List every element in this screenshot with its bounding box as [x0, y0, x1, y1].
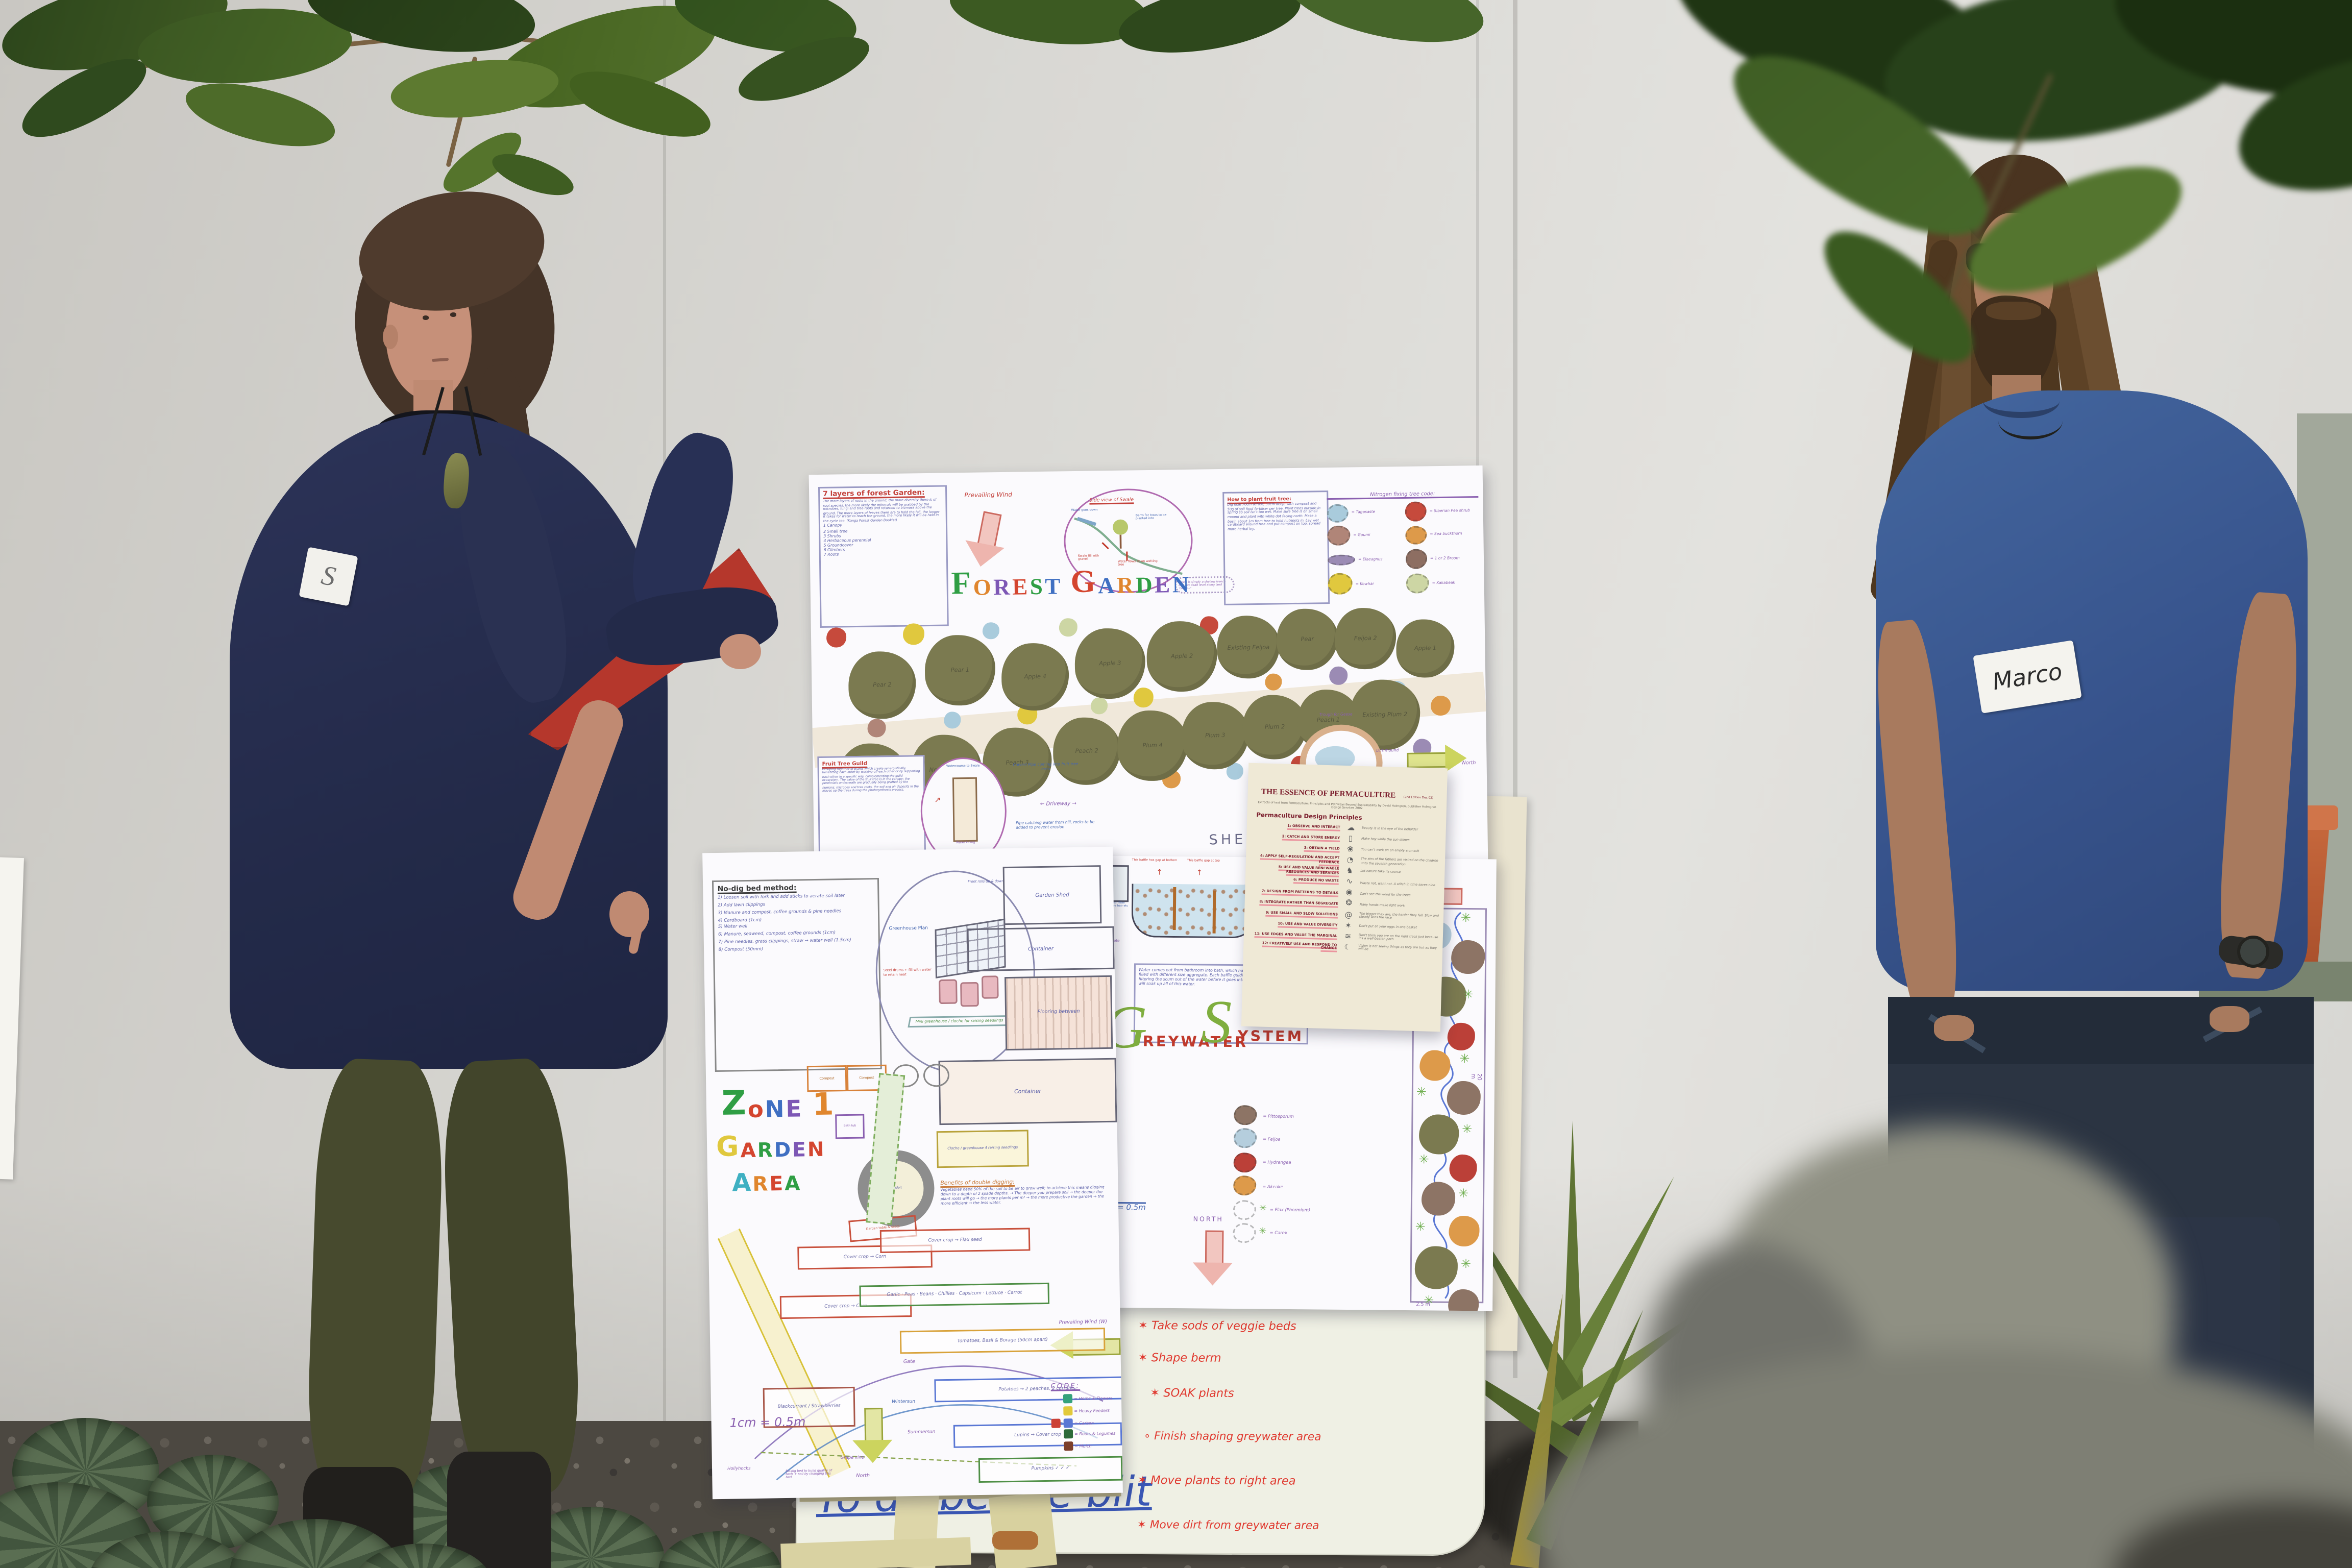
tree-label: Existing Feijoa [1228, 644, 1270, 650]
flax-star: ✳ [1462, 1124, 1472, 1136]
orchard-dot [1265, 673, 1282, 690]
greywater-legend: = Pittosporum = Feijoa = Hydrangea = Ake… [1233, 1105, 1356, 1247]
forest-north-label: North [1462, 759, 1476, 766]
essence-edition: (2nd Edition Dec 02) [1403, 796, 1433, 800]
garden-bed: Garlic · Peas · Beans · Chillies · Capsi… [859, 1283, 1049, 1307]
legend-label: = Carex [1269, 1230, 1287, 1236]
nitrogen-item: = Tagasaste [1327, 502, 1401, 523]
listener-name-text: Marco [1991, 658, 2064, 696]
principle-proverb: Let nature take its course [1360, 871, 1443, 876]
principle-icon: ∿ [1341, 879, 1358, 887]
nitrogen-item: = Sea buckthorn [1405, 524, 1479, 545]
principle-name: 3: OBTAIN A YIELD [1256, 846, 1340, 852]
baffle [1213, 891, 1216, 934]
leaf [388, 53, 561, 125]
title-letter: G [1070, 562, 1096, 601]
strip-plant-blob [1414, 1246, 1458, 1289]
principle-name: 2: CATCH AND STORE ENERGY [1256, 835, 1340, 841]
orchard-dot [1134, 688, 1154, 708]
nitrogen-swatch [1406, 549, 1428, 569]
orchard-tree: Apple 4 [1001, 643, 1069, 711]
greywater-title-s: S [1200, 985, 1232, 1058]
garden-bed: Cover crop → Flax seed [880, 1228, 1031, 1253]
zone1-scale: 1cm = 0.5m [729, 1415, 805, 1430]
nitrogen-item: = Elaeagnus [1328, 549, 1402, 570]
nitrogen-label: = Sea buckthorn [1430, 532, 1462, 537]
principle-icon: ☁ [1342, 825, 1359, 833]
hand-in-pocket [1934, 1015, 1974, 1041]
baffle1-label: This baffle has gap at bottom [1132, 859, 1178, 863]
legend-label: = Pittosporum [1263, 1112, 1294, 1119]
tree-label: Pear [1301, 636, 1314, 643]
todo-item: ✶ Shape berm [1138, 1351, 1221, 1365]
presenter-name-tag: S [299, 547, 358, 606]
foliage-top-right [1623, 0, 2352, 429]
presenter-name-text: S [318, 559, 338, 594]
essence-title: THE ESSENCE OF PERMACULTURE [1261, 788, 1396, 800]
principle-proverb: Make hay while the sun shines [1361, 838, 1444, 844]
bed-label: Garlic · Peas · Beans · Chillies · Capsi… [884, 1291, 1025, 1298]
culvert-pipe-sketch [952, 777, 978, 842]
orchard-tree: Pear 1 [924, 634, 996, 706]
tree-label: Plum 3 [1205, 732, 1225, 739]
principle-proverb: The bigger they are, the harder they fal… [1359, 913, 1442, 922]
guild-body: Grouping together of plants which create… [822, 767, 921, 794]
presenter-ear [383, 325, 398, 349]
principle-proverb: Don't put all your eggs in one basket [1359, 925, 1441, 931]
flax-star: ✳ [1463, 989, 1473, 1001]
leaf [487, 145, 578, 204]
principle-row: 7: DESIGN FROM PATTERNS TO DETAILS ◉ Can… [1254, 888, 1435, 900]
title-letter: D [1136, 574, 1153, 600]
nitrogen-swatch [1327, 526, 1351, 547]
code-label: = Heavy Feeders [1074, 1407, 1110, 1413]
strip-width-label: 2.5 m [1416, 1301, 1430, 1307]
principle-icon: ☾ [1339, 944, 1356, 952]
code-swatch-secondary [1051, 1442, 1061, 1451]
garden-bed: Pumpkins ✓ ✓ ✓ [978, 1456, 1123, 1483]
tree-label: Apple 1 [1414, 645, 1436, 651]
howto-body: Dig hole 70cm across, 30cm deep, with co… [1228, 503, 1325, 532]
principle-proverb: Don't think you are on the right track j… [1359, 935, 1441, 944]
orchard-dot [1091, 697, 1108, 714]
orchard-dot [944, 712, 961, 728]
tree-label: Pear 1 [951, 667, 970, 673]
nitrogen-label: = Kowhai [1356, 581, 1374, 586]
seven-layers-block: 7 layers of forest Garden: The more laye… [818, 485, 949, 627]
orchard-dot [903, 623, 925, 645]
tree-label: Feijoa 2 [1354, 635, 1377, 642]
nitrogen-label: = Tagasaste [1352, 510, 1376, 515]
wintersun-label: Wintersun [892, 1398, 915, 1405]
wristwatch-face [2237, 936, 2269, 968]
title-letter: S [1030, 576, 1043, 602]
bed-label: Tomatoes, Basil & Borage (50cm apart) [954, 1338, 1050, 1344]
swale-water-label: Water goes down [1071, 509, 1099, 512]
code-swatch [1063, 1442, 1072, 1451]
nitrogen-swatch [1406, 573, 1429, 593]
photo-scene: S To do before blit ✶ Move plants …✶ Tak… [0, 0, 2352, 1568]
nitrogen-swatch [1328, 573, 1353, 595]
orchard-dot [1329, 667, 1347, 685]
code-swatch [1063, 1418, 1072, 1427]
principle-icon: ♞ [1341, 868, 1358, 876]
flax-star: ✳ [1461, 1259, 1471, 1271]
code-item: = Mulch [1051, 1441, 1122, 1451]
orchard-tree: Apple 2 [1146, 621, 1218, 692]
principle-row: 9: USE SMALL AND SLOW SOLUTIONS @ The bi… [1254, 910, 1434, 922]
presenter-boot-shaft [447, 1452, 551, 1568]
orchard-tree: Plum 3 [1181, 701, 1249, 770]
strip-plant-blob [1419, 1050, 1451, 1081]
orchard-tree: Apple 3 [1074, 628, 1146, 699]
code-label: = Roots & Legumes [1074, 1431, 1115, 1437]
presenter-eye [423, 315, 429, 320]
trough-label: Trough for Geese [1305, 712, 1366, 718]
nitrogen-label: = 1 or 2 Broom [1430, 556, 1460, 561]
nitrogen-swatch [1405, 501, 1427, 522]
tree-label: Peach 2 [1075, 748, 1098, 754]
flax-star: ✳ [1415, 1221, 1425, 1234]
orchard-dot [983, 622, 999, 639]
principle-name: 6: PRODUCE NO WASTE [1255, 879, 1339, 885]
greywater-title-reywater: REYWATER [1143, 1034, 1248, 1051]
nitrogen-label: = Goumi [1353, 533, 1370, 538]
culvert-note: Culvert Pipe coming into fruit tree area [1009, 762, 1083, 772]
hollyhocks-label: Hollyhocks [727, 1465, 751, 1472]
guild-heading: Fruit Tree Guild [822, 759, 920, 767]
legend-swatch [1234, 1129, 1257, 1148]
greywater-title-ystem: YSTEM [1238, 1028, 1304, 1046]
legend-star: ✳ [1259, 1229, 1266, 1238]
nitrogen-label: = Siberian Pea shrub [1430, 508, 1470, 513]
baffle-arrow: ↑ [1157, 869, 1163, 878]
baffle2-label: This baffle gap at top [1187, 860, 1227, 863]
orchard-tree: Pear 2 [848, 651, 916, 719]
principle-row: 6: PRODUCE NO WASTE ∿ Waste not, want no… [1255, 877, 1435, 890]
todo-item: ✶ Move plants to right area [1137, 1473, 1295, 1488]
principle-proverb: The sins of the fathers are visited on t… [1361, 859, 1443, 868]
greywater-legend-item: ✳ = Carex [1233, 1223, 1355, 1244]
principle-name: 8: INTEGRATE RATHER THAN SEGREGATE [1254, 900, 1338, 906]
principle-name: 11: USE EDGES AND VALUE THE MARGINAL [1253, 933, 1337, 939]
pipe-note: Pipe catching water from hill, rocks to … [1016, 820, 1105, 830]
nitrogen-item: = Goumi [1327, 525, 1401, 546]
principle-proverb: Can't see the wood for the trees [1360, 893, 1442, 898]
code-items: = Herbs & Flowers = Heavy Feeders = Carb… [1051, 1393, 1122, 1452]
principle-name: 1: OBSERVE AND INTERACT [1256, 824, 1340, 830]
tree-label: Plum 2 [1265, 724, 1285, 730]
orchard-tree: Peach 2 [1052, 717, 1121, 786]
orchard-tree: Apple 1 [1396, 619, 1455, 678]
nitrogen-item: = 1 or 2 Broom [1406, 548, 1480, 569]
tree-label: Peach 1 [1317, 717, 1340, 723]
title-letter: E [1155, 574, 1170, 600]
orchard-tree: Pear [1276, 608, 1338, 671]
todo-item: ✶ Take sods of veggie beds [1138, 1318, 1296, 1333]
foliage-top-left [0, 0, 949, 230]
legend-star: ✳ [1259, 1205, 1267, 1214]
principles-list: 1: OBSERVE AND INTERACT ☁ Beauty is in t… [1253, 822, 1437, 954]
leaf [1114, 0, 1305, 64]
presenter-pointing-hand [609, 891, 649, 937]
title-letter: N [1172, 574, 1189, 600]
code-label: = Mulch [1074, 1443, 1091, 1450]
bath-tub-sketch [1131, 884, 1257, 938]
code-swatch-secondary [1051, 1394, 1060, 1404]
orchard-tree: Existing Feijoa [1217, 615, 1281, 679]
culvert-top-label: Watercourse to Swale [937, 765, 989, 768]
principle-icon: ❂ [1340, 901, 1357, 909]
foliage-top-center [919, 0, 1562, 107]
strip-plant-blob [1449, 1155, 1477, 1182]
code-label: = Herbs & Flowers [1074, 1395, 1112, 1402]
principle-icon: ◉ [1340, 890, 1357, 898]
nitrogen-swatch [1327, 503, 1349, 522]
orchard-tree: Feijoa 2 [1334, 607, 1396, 670]
legend-label: = Feijoa [1263, 1136, 1281, 1142]
strip-plant-blob [1451, 940, 1485, 974]
title-letter: T [1045, 575, 1061, 601]
presenter-legging [439, 1057, 584, 1497]
principle-icon: ▯ [1342, 836, 1359, 844]
tree-label: Apple 3 [1099, 660, 1121, 667]
legend-label: = Hydrangea [1263, 1159, 1291, 1165]
principle-icon: ✶ [1340, 923, 1357, 931]
strip-plant-blob [1449, 1216, 1480, 1247]
orchard-dot [1431, 696, 1451, 716]
bed-label: Cover crop → Corn [841, 1255, 890, 1260]
seven-layers-list: 1 Canopy2 Small tree3 Shrubs4 Herbaceous… [823, 523, 943, 558]
nitrogen-label: = Elaeagnus [1358, 557, 1383, 562]
code-swatch [1063, 1406, 1072, 1415]
principle-name: 12: CREATIVELY USE AND RESPOND TO CHANGE [1253, 942, 1337, 951]
greywater-legend-item: ✳ = Flax (Phormium) [1233, 1199, 1356, 1220]
nitrogen-legend: Nitrogen fixing tree code: = Tagasaste =… [1327, 490, 1480, 618]
swale-fill-label: Swale fill with gravel [1078, 555, 1109, 561]
presenter-legging [305, 1058, 446, 1509]
code-swatch [1063, 1430, 1072, 1439]
essence-heading: Permaculture Design Principles [1256, 811, 1437, 824]
zone1-north-label: North [856, 1472, 870, 1478]
baffle [1173, 887, 1176, 930]
principle-proverb: Many hands make light work [1359, 903, 1442, 909]
todo-item: ✶ SOAK plants [1150, 1386, 1234, 1400]
principle-name: 4: APPLY SELF-REGULATION AND ACCEPT FEED… [1255, 855, 1339, 865]
todo-item: ✶ Move dirt from greywater area [1137, 1517, 1319, 1532]
nodig-note: No-dig bed to build quality of beds + so… [786, 1469, 838, 1480]
leaf [1282, 0, 1490, 57]
driveway-label: ← Driveway → [1040, 800, 1076, 807]
greywater-legend-item: = Pittosporum [1234, 1105, 1356, 1126]
easel-leg [989, 1491, 1057, 1568]
title-letter: F [951, 565, 971, 603]
code-swatch-secondary [1051, 1406, 1060, 1415]
principle-name: 7: DESIGN FROM PATTERNS TO DETAILS [1254, 890, 1338, 896]
principle-proverb: You can't work on an empty stomach [1361, 849, 1443, 855]
nitrogen-items: = Tagasaste = Siberian Pea shrub = Goumi… [1327, 501, 1480, 599]
title-letter: O [973, 576, 991, 602]
principle-proverb: Beauty is in the eye of the beholder [1362, 827, 1444, 833]
principle-name: 5: USE AND VALUE RENEWABLE RESOURCES AND… [1255, 866, 1339, 876]
title-letter: R [993, 576, 1010, 602]
strip-length-label: 20 m [1470, 1073, 1482, 1086]
tree-label: Pear 2 [873, 682, 892, 688]
swale-berm-label: Berm for trees to be planted into [1136, 514, 1179, 521]
leaf [180, 71, 341, 159]
flax-star: ✳ [1461, 913, 1471, 925]
principle-name: 9: USE SMALL AND SLOW SOLUTIONS [1254, 911, 1338, 917]
nitrogen-item: = Kowhai [1328, 573, 1402, 595]
strip-plant-blob [1448, 1023, 1475, 1050]
principle-icon: ≋ [1339, 934, 1356, 942]
easel-rust [992, 1531, 1038, 1550]
forest-title-letters: FOREST GARDEN [951, 560, 1242, 603]
code-swatch-secondary [1051, 1430, 1061, 1439]
principle-proverb: Waste not, want not. A stitch in time sa… [1360, 882, 1443, 888]
bed-label: Blackcurrant / Strawberries [775, 1404, 844, 1410]
bed-label: Pumpkins ✓ ✓ ✓ [1028, 1466, 1073, 1472]
greywater-legend-item: = Akeake [1233, 1176, 1356, 1197]
principle-proverb: Vision is not seeing things as they are … [1358, 945, 1441, 954]
code-item: = Carbon [1051, 1417, 1122, 1427]
code-swatch-secondary [1051, 1418, 1061, 1427]
principle-icon: ❀ [1342, 847, 1359, 855]
principle-row: 10: USE AND VALUE DIVERSITY ✶ Don't put … [1253, 920, 1434, 933]
nitrogen-item: = Siberian Pea shrub [1405, 501, 1479, 522]
orchard-dot [867, 719, 886, 737]
greywater-north-label: NORTH [1193, 1215, 1223, 1223]
dirt-mound-label: Dirt mound [1376, 748, 1399, 753]
forest-wind-label: Prevailing Wind [962, 491, 1014, 499]
zone1-poster: No-dig bed method: 1) Loosen soil with f… [702, 847, 1123, 1499]
legend-swatch [1233, 1223, 1256, 1243]
nitrogen-label: = Kakabeak [1432, 580, 1455, 585]
nitrogen-swatch [1405, 526, 1427, 545]
tree-label: Plum 4 [1142, 743, 1162, 749]
nitrogen-swatch [1328, 554, 1355, 566]
principle-icon: ◔ [1341, 857, 1358, 866]
legend-swatch [1233, 1199, 1256, 1219]
strip-plant-blob [1419, 1114, 1459, 1155]
legend-label: = Flax (Phormium) [1270, 1207, 1310, 1213]
hand-in-pocket [2210, 1006, 2249, 1032]
code-label: = Carbon [1074, 1419, 1094, 1426]
culvert-arrow: ↗ [934, 796, 941, 805]
orchard-tree: Plum 4 [1117, 710, 1188, 781]
tree-label: Existing Plum 2 [1362, 712, 1407, 718]
todo-item: ∘ Finish shaping greywater area [1144, 1429, 1321, 1443]
leaf [1805, 210, 1993, 384]
principle-icon: @ [1340, 912, 1357, 920]
code-swatch [1062, 1394, 1071, 1403]
legend-swatch [1234, 1105, 1257, 1125]
legend-swatch [1233, 1176, 1256, 1196]
essence-sheet: THE ESSENCE OF PERMACULTURE (2nd Edition… [1241, 763, 1448, 1032]
code-item: = Herbs & Flowers [1051, 1393, 1121, 1404]
flax-star: ✳ [1416, 1087, 1427, 1099]
principle-row: 12: CREATIVELY USE AND RESPOND TO CHANGE… [1253, 942, 1433, 954]
code-legend: CODE: = Herbs & Flowers = Heavy Feeders … [1051, 1383, 1122, 1454]
seven-layers-note: The more layers of roots in the ground, … [823, 499, 943, 525]
greywater-legend-item: = Feijoa [1234, 1129, 1356, 1149]
title-letter: A [1098, 575, 1115, 601]
orchard-dot [826, 627, 847, 648]
title-letter [1063, 575, 1069, 601]
flax-star: ✳ [1458, 1188, 1468, 1200]
tree-label: Apple 4 [1024, 674, 1046, 680]
presenter-eye [450, 312, 456, 316]
code-item: = Roots & Legumes [1051, 1429, 1122, 1439]
code-heading: CODE: [1051, 1383, 1121, 1391]
legend-label: = Akeake [1262, 1183, 1283, 1189]
title-letter: E [1012, 576, 1028, 602]
forest-title: FOREST GARDEN [951, 560, 1242, 610]
principle-name: 10: USE AND VALUE DIVERSITY [1253, 922, 1337, 928]
principle-row: 5: USE AND VALUE RENEWABLE RESOURCES AND… [1255, 866, 1435, 878]
tree-label: Apple 2 [1171, 653, 1193, 659]
orchard-dot [1059, 618, 1077, 636]
culvert-water-label: Water Going [944, 841, 987, 845]
principle-row: 1: OBSERVE AND INTERACT ☁ Beauty is in t… [1256, 822, 1437, 835]
gate-label: Gate [903, 1358, 915, 1364]
legend-swatch [1233, 1152, 1256, 1172]
code-item: = Heavy Feeders [1051, 1405, 1121, 1415]
presenter-hand [720, 634, 761, 669]
summersun-label: Summersun [908, 1428, 936, 1435]
principle-row: 8: INTEGRATE RATHER THAN SEGREGATE ❂ Man… [1254, 898, 1434, 911]
strip-plant-blob [1422, 1182, 1456, 1216]
principle-row: 2: CATCH AND STORE ENERGY ▯ Make hay whi… [1256, 834, 1436, 846]
title-letter: R [1117, 574, 1134, 600]
flax-star: ✳ [1419, 1154, 1429, 1166]
flax-star: ✳ [1459, 1053, 1469, 1066]
greywater-legend-item: = Hydrangea [1233, 1152, 1356, 1173]
greywater-legend-items: = Pittosporum = Feijoa = Hydrangea = Ake… [1233, 1105, 1356, 1244]
baffle-arrow: ↑ [1196, 869, 1203, 878]
bed-label: Cover crop → Flax seed [925, 1238, 985, 1243]
nitrogen-item: = Kakabeak [1406, 571, 1480, 594]
nitrogen-heading: Nitrogen fixing tree code: [1327, 490, 1478, 500]
strip-plant-blob [1447, 1081, 1481, 1115]
garden-bed: Tomatoes, Basil & Borage (50cm apart) [900, 1328, 1106, 1354]
foreground-person [1501, 1072, 2352, 1568]
leaf [1951, 141, 2198, 318]
